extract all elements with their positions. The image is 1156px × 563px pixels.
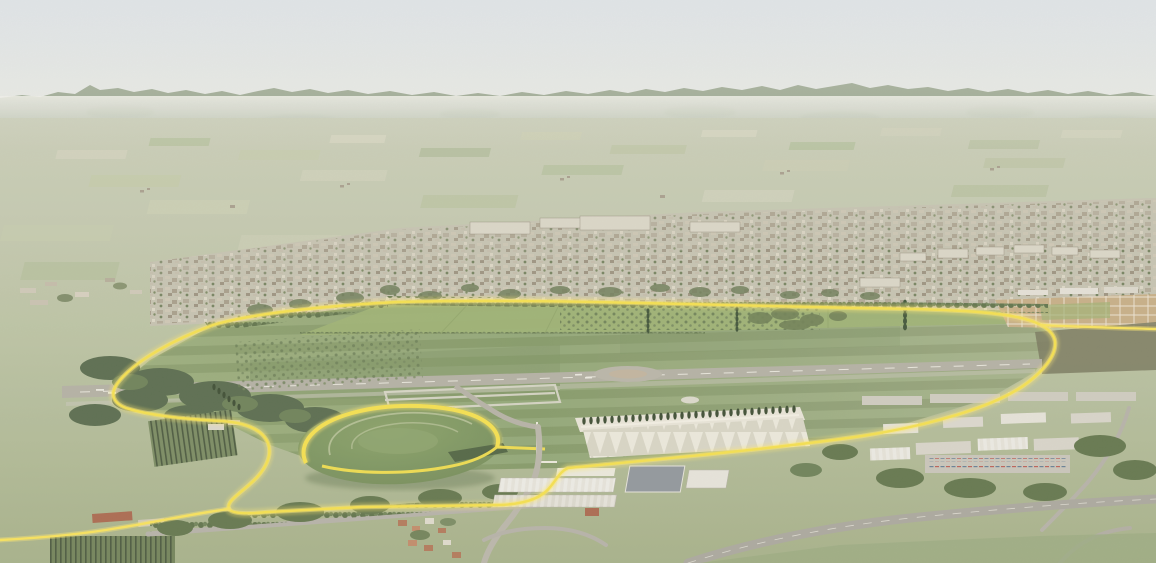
film-grain — [0, 0, 1156, 563]
aerial-rendering — [0, 0, 1156, 563]
